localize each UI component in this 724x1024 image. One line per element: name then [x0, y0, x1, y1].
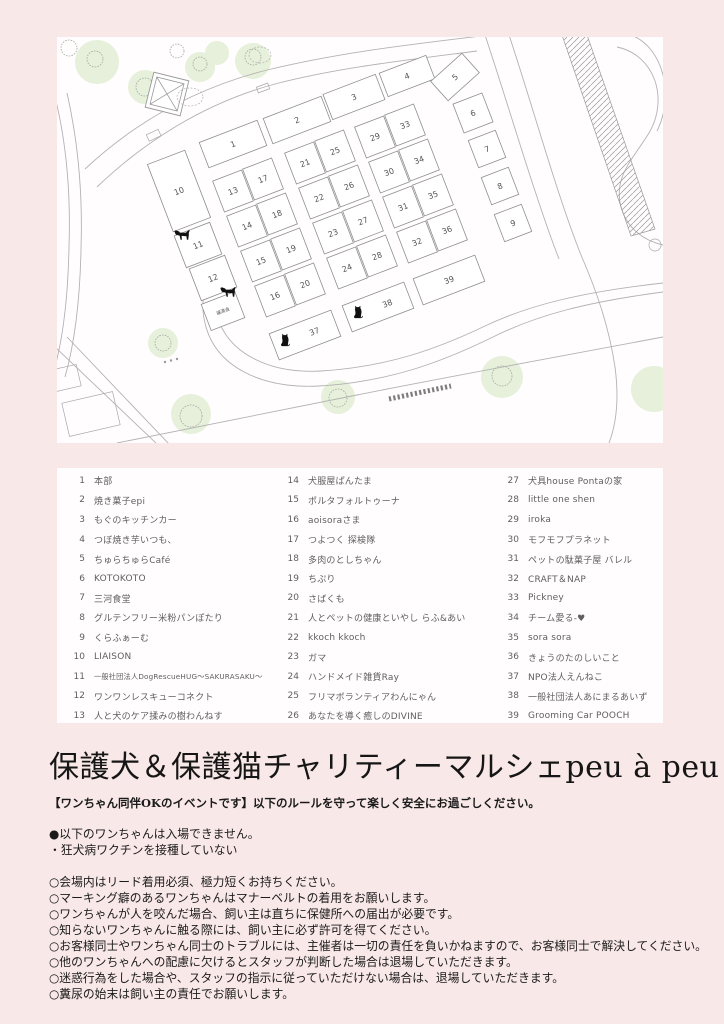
- booth-number: 35: [501, 633, 519, 643]
- legend-item: 12ワンワンレスキューコネクト: [67, 687, 262, 707]
- vendor-name: little one shen: [528, 495, 595, 505]
- vendor-name: グルテンフリー米粉パンぽたり: [94, 611, 223, 624]
- legend-item: 10LIAISON: [67, 647, 262, 667]
- vendor-name: NPO法人えんねこ: [528, 670, 603, 683]
- path-dot: [176, 358, 178, 360]
- vendor-name: ちゅらちゅらCafé: [94, 553, 171, 566]
- path-dot: [170, 359, 172, 361]
- booth-37: 37: [269, 310, 341, 360]
- legend-item: 36きょうのたのしいこと: [501, 647, 648, 667]
- booth-number: 24: [281, 672, 299, 682]
- booth-number: 31: [501, 554, 519, 564]
- vendor-name: LIAISON: [94, 652, 131, 662]
- rule-line: ○お客様同士やワンちゃん同士のトラブルには、主催者は一切の責任を負いかねますので…: [49, 938, 707, 954]
- round-marker: [649, 239, 661, 251]
- vendor-name: 犬服屋ぱんたま: [308, 474, 372, 487]
- booth-number: 10: [67, 652, 85, 662]
- rule-line: ●以下のワンちゃんは入場できません。: [49, 826, 260, 842]
- legend-item: 20さばくも: [281, 589, 465, 609]
- rule-line: ・狂犬病ワクチンを接種していない: [49, 842, 260, 858]
- booth-1: 1: [199, 120, 267, 167]
- booth-number: 25: [281, 691, 299, 701]
- booth-number: 17: [281, 535, 299, 545]
- booth-number: 26: [281, 711, 299, 721]
- rule-line: ○マーキング癖のあるワンちゃんはマナーベルトの着用をお願いします。: [49, 890, 707, 906]
- vendor-name: ペットの駄菓子屋 バレル: [528, 553, 632, 566]
- vendor-name: モフモフプラネット: [528, 533, 611, 546]
- legend-item: 18多肉のとしちゃん: [281, 549, 465, 569]
- vendor-name: kkoch kkoch: [308, 633, 366, 643]
- legend-item: 31ペットの駄菓子屋 バレル: [501, 549, 648, 569]
- legend-item: 32CRAFT＆NAP: [501, 569, 648, 589]
- booth-3: 3: [323, 74, 385, 119]
- booth-number: 16: [281, 515, 299, 525]
- vendor-name: さばくも: [308, 592, 345, 605]
- legend-item: 21人とペットの健康といやし らふ&あい: [281, 608, 465, 628]
- booth-number: 6: [67, 574, 85, 584]
- booth-number: 7: [67, 593, 85, 603]
- booth-number: 37: [501, 672, 519, 682]
- booth-number: 39: [501, 711, 519, 721]
- hatched-strip: [562, 37, 655, 236]
- booth-6: 6: [453, 93, 493, 133]
- booth-4: 4: [379, 55, 435, 96]
- legend-item: 25フリマボランティアわんにゃん: [281, 687, 465, 707]
- legend-item: 1本部: [67, 471, 262, 491]
- legend-item: 9くらふぁーむ: [67, 628, 262, 648]
- booth-number: 5: [67, 554, 85, 564]
- vendor-name: Pickney: [528, 593, 564, 603]
- vendor-name: sora sora: [528, 633, 571, 643]
- legend-item: 38一般社団法人あにまるあいず: [501, 687, 648, 707]
- vendor-name: もぐのキッチンカー: [94, 513, 177, 526]
- vendor-legend: 1本部2焼き菓子epi3もぐのキッチンカー4つぼ焼き芋いつも、5ちゅらちゅらCa…: [57, 468, 663, 723]
- event-subtitle: 【ワンちゃん同伴OKのイベントです】以下のルールを守って楽しく安全にお過ごしくだ…: [49, 795, 540, 811]
- tree-icon: [481, 356, 523, 398]
- vendor-name: くらふぁーむ: [94, 631, 149, 644]
- tree-canopy-icon: [170, 44, 184, 58]
- booth-number: 1: [67, 476, 85, 486]
- legend-item: 23ガマ: [281, 647, 465, 667]
- booth-38: 38: [342, 282, 414, 332]
- legend-column-3: 27犬具house Pontaの家28little one shen29irok…: [501, 471, 648, 726]
- vendor-name: Grooming Car POOCH: [528, 711, 630, 721]
- tree-icon: [75, 40, 119, 84]
- rule-line: ○他のワンちゃんへの配慮に欠けるとスタッフが判断した場合は退場していただきます。: [49, 954, 707, 970]
- site-map: 123456789101112譲渡会1317141815191620212522…: [57, 37, 663, 443]
- legend-item: 26あなたを導く癒しのDIVINE: [281, 706, 465, 726]
- legend-column-2: 14犬服屋ぱんたま15ポルタフォルトゥーナ16aoisoraさま17つよつく 探…: [281, 471, 465, 726]
- vendor-name: 本部: [94, 474, 112, 487]
- vendor-name: フリマボランティアわんにゃん: [308, 690, 436, 703]
- legend-item: 5ちゅらちゅらCafé: [67, 549, 262, 569]
- booth-number: 28: [501, 495, 519, 505]
- vendor-name: ちぷり: [308, 572, 336, 585]
- vendor-name: ポルタフォルトゥーナ: [308, 494, 400, 507]
- booth-number: 23: [281, 652, 299, 662]
- rule-line: ○迷惑行為をした場合や、スタッフの指示に従っていただけない場合は、退場していただ…: [49, 970, 707, 986]
- booth-number: 21: [281, 613, 299, 623]
- bench-icon: [256, 83, 269, 93]
- booth-number: 27: [501, 476, 519, 486]
- vendor-name: KOTOKOTO: [94, 574, 146, 584]
- curb-steps: [389, 386, 451, 399]
- legend-item: 30モフモフプラネット: [501, 530, 648, 550]
- booth-number: 9: [67, 633, 85, 643]
- booth-number: 14: [281, 476, 299, 486]
- building-outline: [62, 392, 120, 437]
- legend-item: 8グルテンフリー米粉パンぽたり: [67, 608, 262, 628]
- vendor-name: 多肉のとしちゃん: [308, 553, 382, 566]
- vendor-name: つよつく 探検隊: [308, 533, 375, 546]
- legend-item: 22kkoch kkoch: [281, 628, 465, 648]
- booth-number: 22: [281, 633, 299, 643]
- legend-item: 35sora sora: [501, 628, 648, 648]
- legend-item: 14犬服屋ぱんたま: [281, 471, 465, 491]
- tree-icon: [148, 328, 178, 358]
- tree-icon: [205, 41, 229, 65]
- rule-line: ○糞尿の始末は飼い主の責任でお願いします。: [49, 986, 707, 1002]
- vendor-name: チーム愛る-♥: [528, 611, 585, 624]
- vendor-name: あなたを導く癒しのDIVINE: [308, 709, 423, 722]
- vendor-name: きょうのたのしいこと: [528, 651, 620, 664]
- legend-item: 15ポルタフォルトゥーナ: [281, 491, 465, 511]
- vendor-name: 一般社団法人DogRescueHUG〜SAKURASAKU〜: [94, 672, 262, 682]
- booth-number: 13: [67, 711, 85, 721]
- booth-number: 8: [67, 613, 85, 623]
- vendor-name: ワンワンレスキューコネクト: [94, 690, 214, 703]
- booths-layer: 123456789101112譲渡会1317141815191620212522…: [147, 53, 531, 360]
- legend-item: 34チーム愛る-♥: [501, 608, 648, 628]
- rules-list: ○会場内はリード着用必須、極力短くお持ちください。○マーキング癖のあるワンちゃん…: [49, 874, 707, 1002]
- legend-item: 28little one shen: [501, 491, 648, 511]
- booth-8: 8: [481, 167, 518, 204]
- vendor-name: つぼ焼き芋いつも、: [94, 533, 177, 546]
- vendor-name: 犬具house Pontaの家: [528, 474, 622, 487]
- booth-number: 38: [501, 691, 519, 701]
- vendor-name: iroka: [528, 515, 551, 525]
- legend-item: 7三河食堂: [67, 589, 262, 609]
- legend-item: 11一般社団法人DogRescueHUG〜SAKURASAKU〜: [67, 667, 262, 687]
- legend-column-1: 1本部2焼き菓子epi3もぐのキッチンカー4つぼ焼き芋いつも、5ちゅらちゅらCa…: [67, 471, 262, 726]
- booth-39: 39: [413, 255, 485, 305]
- booth-number: 33: [501, 593, 519, 603]
- legend-item: 19ちぷり: [281, 569, 465, 589]
- vendor-name: ハンドメイド雑貨Ray: [308, 670, 399, 683]
- vendor-name: 三河食堂: [94, 592, 131, 605]
- booth-2: 2: [263, 96, 331, 143]
- tree-icon: [631, 366, 663, 412]
- booth-number: 15: [281, 495, 299, 505]
- legend-item: 24ハンドメイド雑貨Ray: [281, 667, 465, 687]
- legend-item: 16aoisoraさま: [281, 510, 465, 530]
- booth-number: 36: [501, 652, 519, 662]
- vendor-name: aoisoraさま: [308, 513, 361, 526]
- booth-number: 20: [281, 593, 299, 603]
- booth-number: 2: [67, 495, 85, 505]
- booth-10: 10: [147, 150, 210, 232]
- legend-item: 37NPO法人えんねこ: [501, 667, 648, 687]
- path-dot: [164, 361, 166, 363]
- booth-number: 30: [501, 535, 519, 545]
- booth-number: 19: [281, 574, 299, 584]
- booth-number: 18: [281, 554, 299, 564]
- legend-item: 29iroka: [501, 510, 648, 530]
- booth-7: 7: [468, 130, 505, 167]
- legend-item: 17つよつく 探検隊: [281, 530, 465, 550]
- legend-item: 39Grooming Car POOCH: [501, 706, 648, 726]
- booth-number: 3: [67, 515, 85, 525]
- booth-number: 12: [67, 691, 85, 701]
- vendor-name: ガマ: [308, 651, 326, 664]
- entry-restrictions: ●以下のワンちゃんは入場できません。・狂犬病ワクチンを接種していない: [49, 826, 260, 858]
- legend-item: 27犬具house Pontaの家: [501, 471, 648, 491]
- legend-item: 13人と犬のケア揉みの樹わんねす: [67, 706, 262, 726]
- legend-item: 6KOTOKOTO: [67, 569, 262, 589]
- booth-number: 29: [501, 515, 519, 525]
- legend-item: 3もぐのキッチンカー: [67, 510, 262, 530]
- vendor-name: 人と犬のケア揉みの樹わんねす: [94, 709, 223, 722]
- booth-number: 4: [67, 535, 85, 545]
- legend-item: 33Pickney: [501, 589, 648, 609]
- legend-item: 4つぼ焼き芋いつも、: [67, 530, 262, 550]
- rule-line: ○ワンちゃんが人を咬んだ場合、飼い主は直ちに保健所への届出が必要です。: [49, 906, 707, 922]
- event-title: 保護犬＆保護猫チャリティーマルシェpeu à peu: [49, 742, 719, 786]
- rule-line: ○会場内はリード着用必須、極力短くお持ちください。: [49, 874, 707, 890]
- booth-9: 9: [494, 204, 531, 241]
- vendor-name: 人とペットの健康といやし らふ&あい: [308, 611, 465, 624]
- vendor-name: 焼き菓子epi: [94, 494, 145, 507]
- vendor-name: 一般社団法人あにまるあいず: [528, 690, 648, 703]
- booth-number: 32: [501, 574, 519, 584]
- booth-number: 11: [67, 672, 85, 682]
- rule-line: ○知らないワンちゃんに触る際には、飼い主に必ず許可を得てください。: [49, 922, 707, 938]
- vendor-name: CRAFT＆NAP: [528, 572, 586, 585]
- booth-number: 34: [501, 613, 519, 623]
- tree-canopy-icon: [61, 40, 77, 56]
- bench-icon: [146, 129, 161, 141]
- booth-5: 5: [431, 53, 480, 100]
- legend-item: 2焼き菓子epi: [67, 491, 262, 511]
